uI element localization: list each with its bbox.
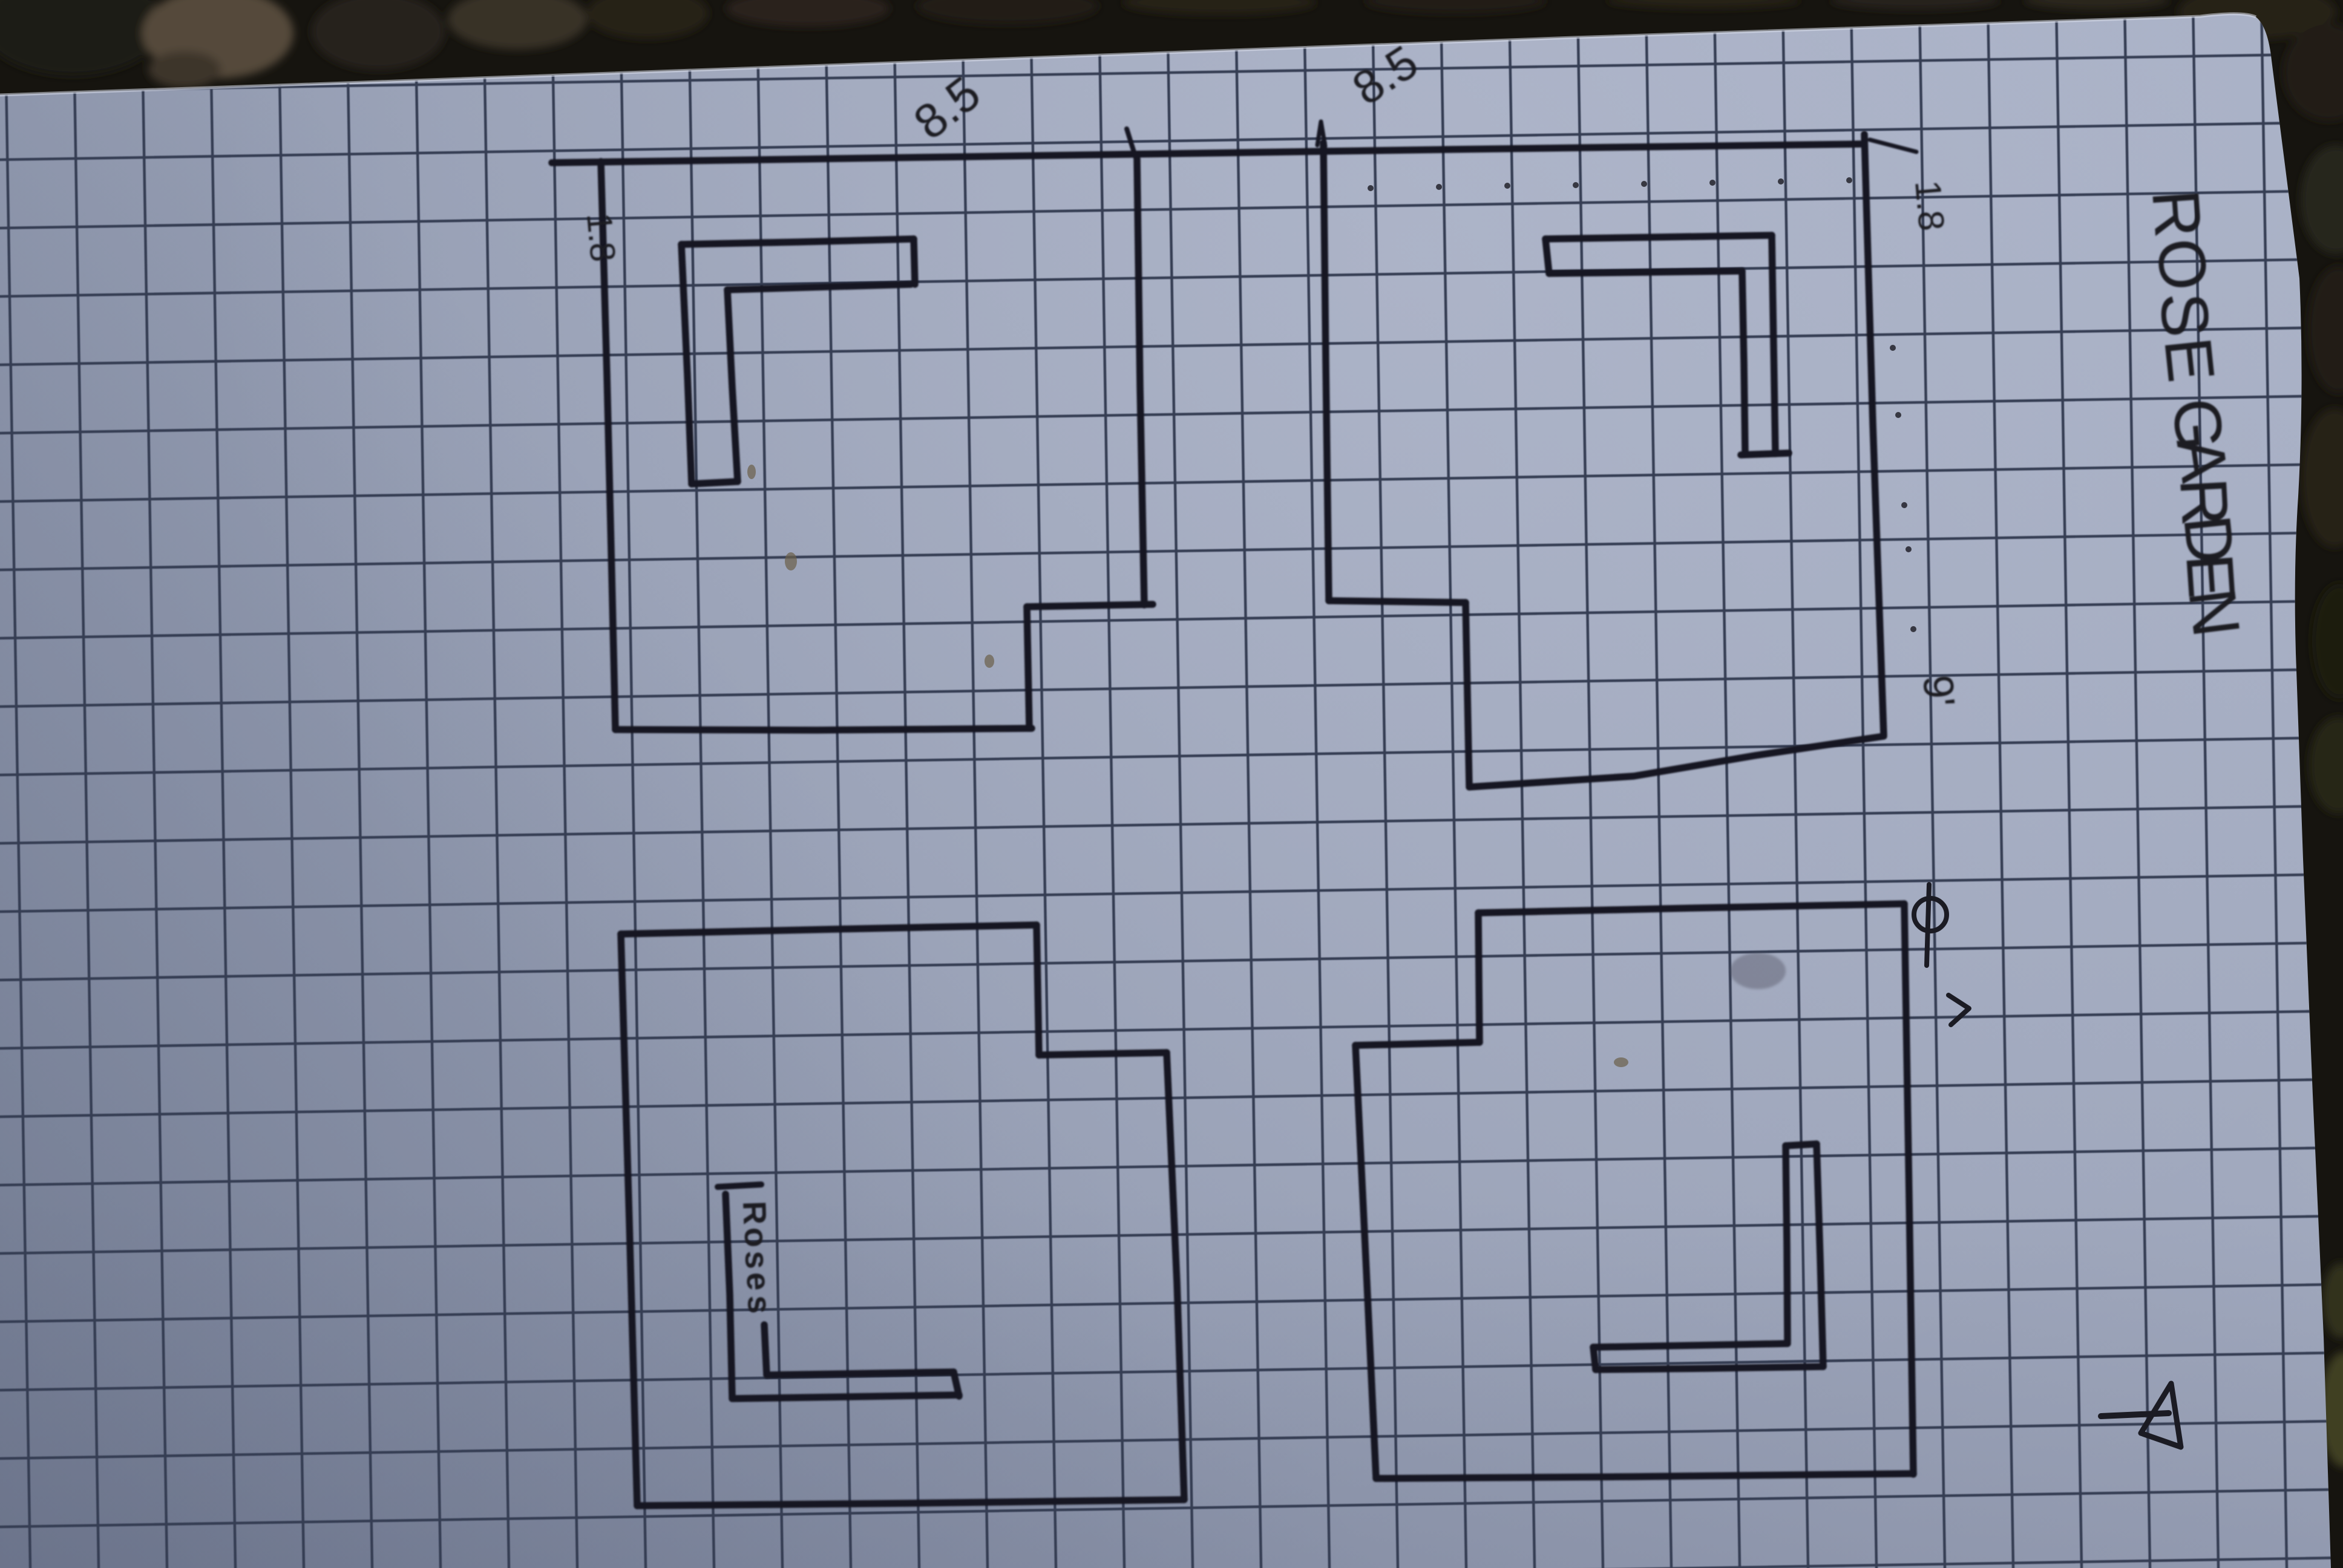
svg-text:s: s bbox=[741, 1295, 778, 1314]
svg-text:R: R bbox=[736, 1200, 773, 1225]
svg-text:1.8: 1.8 bbox=[1907, 178, 1952, 232]
svg-text:9': 9' bbox=[1914, 673, 1964, 709]
svg-text:N: N bbox=[2174, 584, 2254, 641]
svg-text:E: E bbox=[2150, 334, 2229, 386]
svg-text:S: S bbox=[2146, 291, 2223, 339]
svg-text:s: s bbox=[738, 1250, 775, 1269]
svg-text:o: o bbox=[737, 1226, 775, 1249]
svg-text:1.8: 1.8 bbox=[579, 211, 623, 263]
svg-text:R: R bbox=[2138, 187, 2215, 240]
svg-text:e: e bbox=[739, 1271, 776, 1291]
svg-text:O: O bbox=[2141, 234, 2223, 295]
